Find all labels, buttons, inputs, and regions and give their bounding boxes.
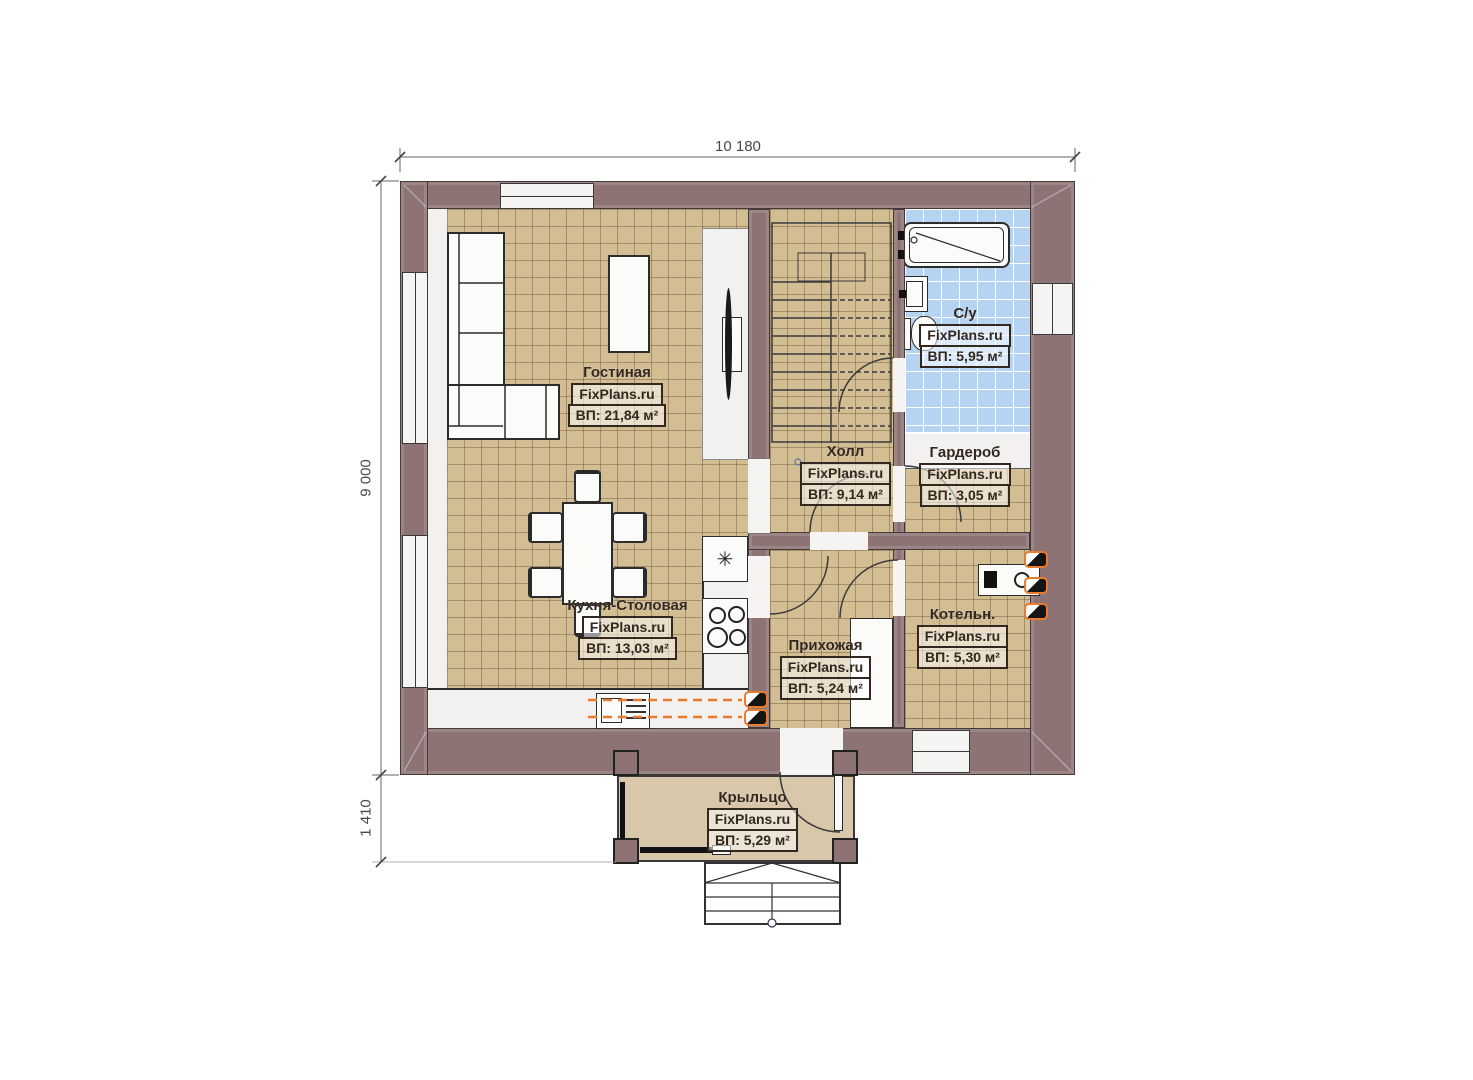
porch-post	[832, 750, 858, 776]
window-left-lower	[402, 535, 428, 688]
radiator-icon	[744, 709, 768, 726]
kitchen-drainer-icon	[626, 699, 646, 723]
chair-right-1	[612, 512, 647, 543]
hob-symbol-box: ✳	[702, 536, 748, 582]
room-name: Гардероб	[930, 444, 1001, 461]
dimension-width-total: 10 180	[715, 138, 761, 155]
bathroom-door-gap	[893, 358, 905, 412]
wall-hall-entry-horizontal	[748, 532, 1030, 550]
room-brand-box: FixPlans.ru	[707, 808, 798, 831]
room-area-box: ВП: 13,03 м²	[578, 637, 677, 660]
sink-tap-icon	[899, 290, 906, 298]
room-area-box: ВП: 5,29 м²	[707, 829, 798, 852]
room-area-box: ВП: 21,84 м²	[568, 404, 667, 427]
kitchen-counter-bottom	[428, 688, 748, 730]
porch-post	[613, 838, 639, 864]
chair-left-1	[528, 512, 563, 543]
room-label-living: Гостиная FixPlans.ru ВП: 21,84 м²	[558, 364, 676, 427]
window-left-upper	[402, 272, 428, 444]
kitchen-sink-bowl	[601, 698, 622, 723]
kitchen-entry-door-gap	[748, 556, 770, 618]
boiler-door-gap	[893, 560, 905, 616]
chair-left-2	[528, 567, 563, 598]
room-name: С/у	[953, 305, 976, 322]
dimension-height-porch: 1 410	[358, 799, 375, 837]
room-name: Котельн.	[930, 606, 996, 623]
room-area-box: ВП: 5,30 м²	[917, 646, 1008, 669]
room-label-bathroom: С/у FixPlans.ru ВП: 5,95 м²	[915, 305, 1015, 368]
room-area-box: ВП: 5,24 м²	[780, 677, 871, 700]
wall-bottom	[400, 728, 1075, 775]
radiator-icon	[1024, 551, 1048, 568]
coffee-table	[608, 255, 650, 353]
hall-door-gap	[810, 532, 868, 550]
stove-burner-icon	[709, 607, 726, 624]
bathroom-sink-inner	[906, 281, 923, 307]
left-window-sill-strip	[428, 209, 447, 689]
floor-plan-canvas: ✳	[0, 0, 1473, 1080]
room-label-porch: Крыльцо FixPlans.ru ВП: 5,29 м²	[700, 789, 805, 852]
radiator-icon	[1024, 603, 1048, 620]
room-label-entry: Прихожая FixPlans.ru ВП: 5,24 м²	[778, 637, 873, 700]
bathtub-faucet-icon	[898, 231, 904, 240]
window-top	[500, 183, 594, 209]
boiler-panel-icon	[984, 571, 997, 588]
room-brand-box: FixPlans.ru	[780, 656, 871, 679]
wardrobe-door-gap	[893, 466, 905, 522]
radiator-icon	[1024, 577, 1048, 594]
room-label-boiler: Котельн. FixPlans.ru ВП: 5,30 м²	[915, 606, 1010, 669]
room-name: Кухня-Столовая	[567, 597, 687, 614]
room-name: Прихожая	[788, 637, 862, 654]
sofa-horizontal-section	[447, 384, 560, 440]
stove-burner-icon	[707, 627, 728, 648]
room-brand-box: FixPlans.ru	[917, 625, 1008, 648]
dining-table	[562, 502, 613, 605]
hob-icon: ✳	[717, 547, 734, 572]
room-brand-box: FixPlans.ru	[582, 616, 673, 639]
living-hall-opening	[748, 458, 770, 534]
room-label-wardrobe: Гардероб FixPlans.ru ВП: 3,05 м²	[915, 444, 1015, 507]
room-name: Крыльцо	[718, 789, 786, 806]
window-right-bathroom	[1032, 283, 1073, 335]
room-label-hall: Холл FixPlans.ru ВП: 9,14 м²	[798, 443, 893, 506]
room-brand-box: FixPlans.ru	[919, 324, 1010, 347]
room-name: Гостиная	[583, 364, 651, 381]
room-brand-box: FixPlans.ru	[800, 462, 891, 485]
bathtub-faucet-icon	[898, 250, 904, 259]
chair-top	[574, 470, 601, 503]
chair-right-2	[612, 567, 647, 598]
stove-burner-icon	[728, 606, 745, 623]
entry-door-leaf	[834, 774, 843, 831]
room-area-box: ВП: 9,14 м²	[800, 483, 891, 506]
room-area-box: ВП: 5,95 м²	[920, 345, 1011, 368]
porch-steps	[704, 862, 841, 925]
wall-right	[1030, 181, 1075, 775]
room-area-box: ВП: 3,05 м²	[920, 484, 1011, 507]
radiator-icon	[744, 691, 768, 708]
room-brand-box: FixPlans.ru	[571, 383, 662, 406]
porch-post	[832, 838, 858, 864]
room-brand-box: FixPlans.ru	[919, 463, 1010, 486]
porch-post	[613, 750, 639, 776]
window-bottom-boiler	[912, 730, 970, 773]
tv-screen-icon	[725, 288, 732, 400]
room-name: Холл	[827, 443, 865, 460]
room-label-kitchen: Кухня-Столовая FixPlans.ru ВП: 13,03 м²	[560, 597, 695, 660]
dimension-height-main: 9 000	[358, 459, 375, 497]
porch-railing-left	[620, 782, 625, 839]
bathtub-inner	[909, 227, 1004, 263]
stove-burner-icon	[729, 629, 746, 646]
